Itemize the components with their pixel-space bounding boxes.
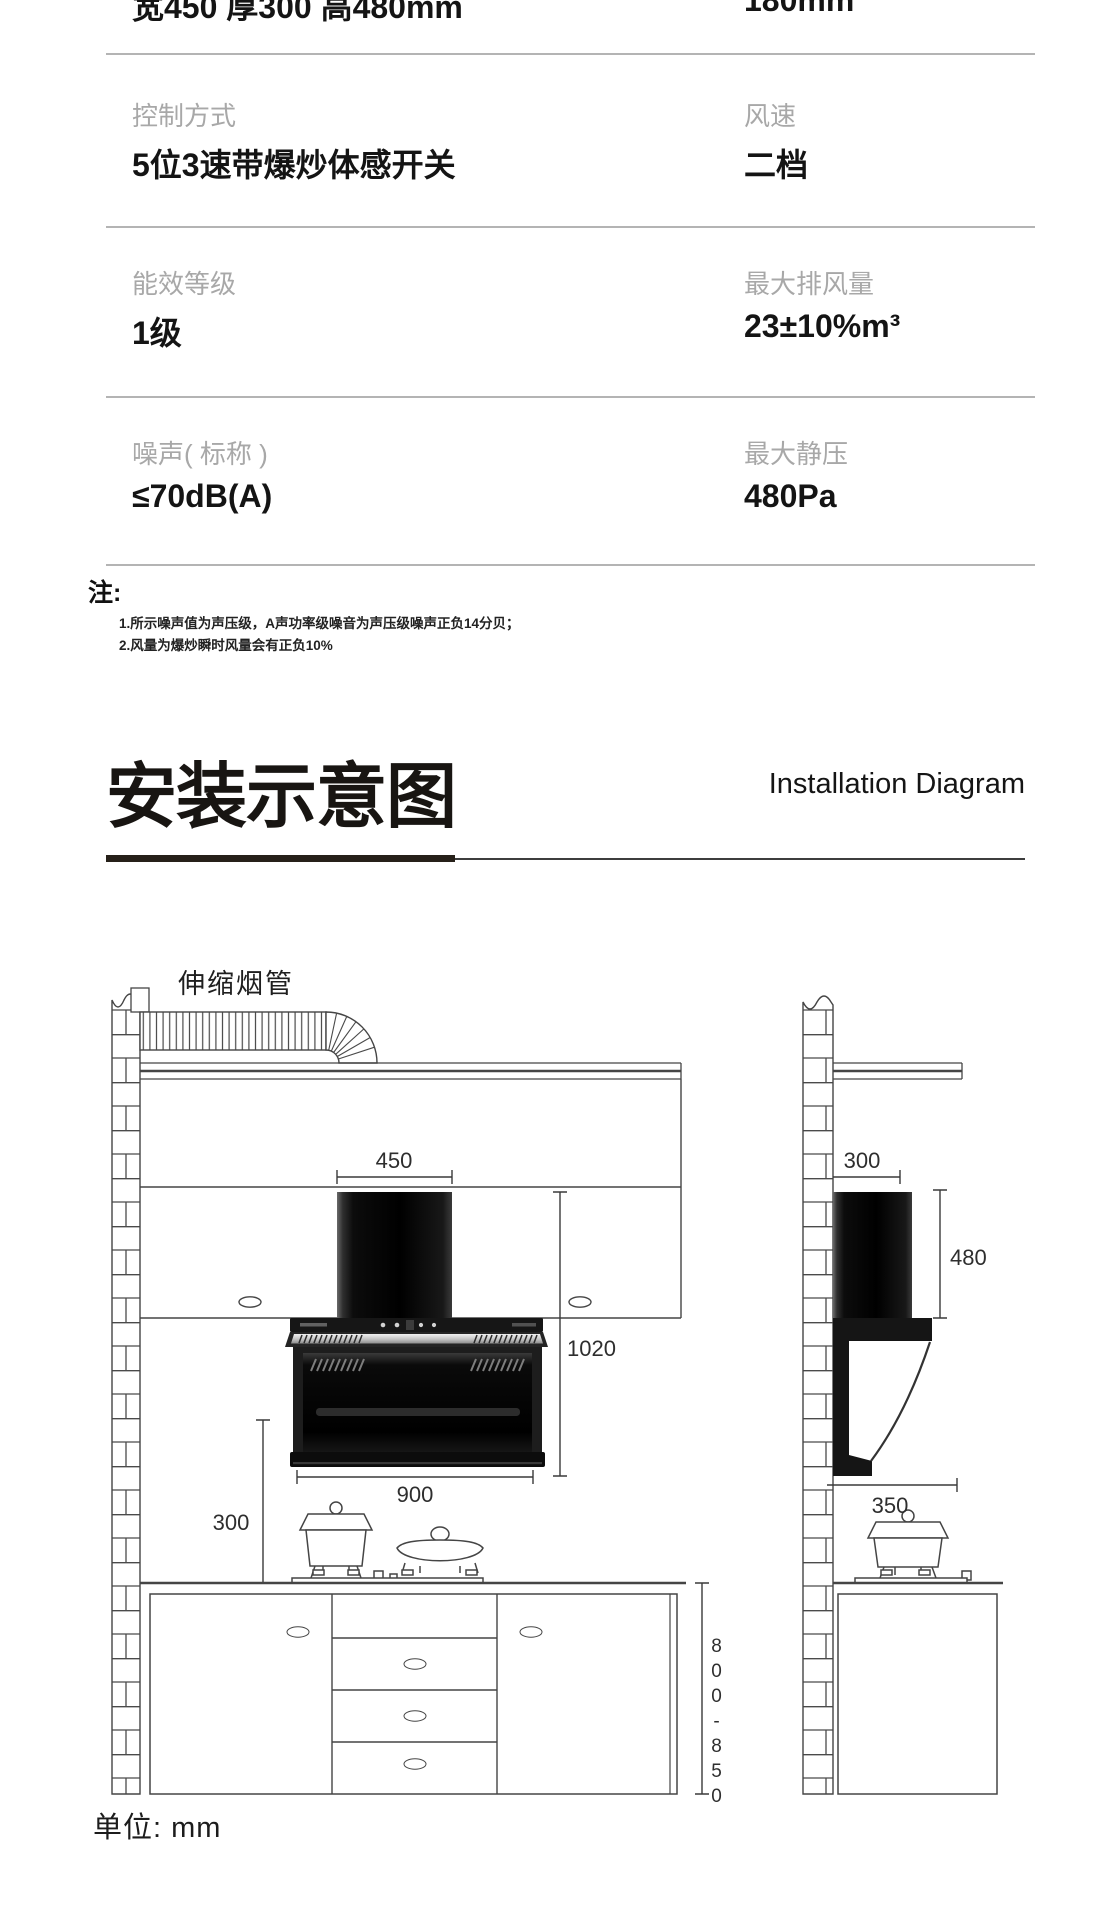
cabinet-handle xyxy=(569,1297,591,1307)
pot-lid xyxy=(300,1514,372,1530)
dim-1020-lines xyxy=(553,1192,567,1476)
flue-pipe-label: 伸缩烟管 xyxy=(178,962,294,1001)
right-ceiling xyxy=(833,1063,962,1079)
dim-label-side-bottom-depth: 350 xyxy=(864,1493,916,1519)
pot-lid-knob xyxy=(330,1502,342,1514)
dim-480-lines xyxy=(933,1190,947,1318)
hood-chimney-front xyxy=(337,1192,452,1318)
hood-brand-text xyxy=(300,1323,327,1327)
product-spec-page: 宽450 厚300 高480mm 180mm 控制方式 5位3速带爆炒体感开关 … xyxy=(0,0,1109,1929)
duct-collar xyxy=(131,988,149,1012)
pot-body xyxy=(874,1538,942,1567)
range-hood-side xyxy=(833,1192,932,1476)
right-wall xyxy=(803,996,833,1794)
base-cabinet-side xyxy=(833,1583,1003,1794)
unit-label: 单位: mm xyxy=(93,1804,221,1846)
hood-model-text xyxy=(512,1323,536,1327)
pot-lid xyxy=(868,1522,948,1538)
hood-side-front-edge xyxy=(871,1342,930,1461)
dim-label-hood-top-width: 450 xyxy=(368,1148,420,1174)
dim-label-side-top-depth: 300 xyxy=(838,1148,886,1174)
range-hood-front xyxy=(285,1318,548,1467)
pot-body xyxy=(306,1530,366,1566)
dim-300-left-lines xyxy=(256,1420,270,1582)
dim-label-hood-body-width: 900 xyxy=(389,1482,441,1508)
dim-label-hood-to-counter: 300 xyxy=(206,1510,256,1536)
telescopic-flue-duct xyxy=(140,1012,377,1063)
wok-lid-knob xyxy=(431,1527,449,1541)
cooktop-side xyxy=(855,1510,971,1583)
dim-label-counter-height: 800-850 xyxy=(705,1636,727,1806)
installation-diagram xyxy=(0,0,1109,1929)
base-cabinet-front xyxy=(140,1583,686,1794)
dim-350-lines xyxy=(827,1478,957,1492)
left-ceiling xyxy=(140,1063,681,1079)
left-wall xyxy=(112,988,149,1794)
wok xyxy=(397,1540,483,1561)
dim-label-chimney-height: 1020 xyxy=(567,1336,616,1362)
cooktop-front xyxy=(292,1502,483,1583)
dim-label-side-height: 480 xyxy=(950,1245,987,1271)
cabinet-handle xyxy=(239,1297,261,1307)
